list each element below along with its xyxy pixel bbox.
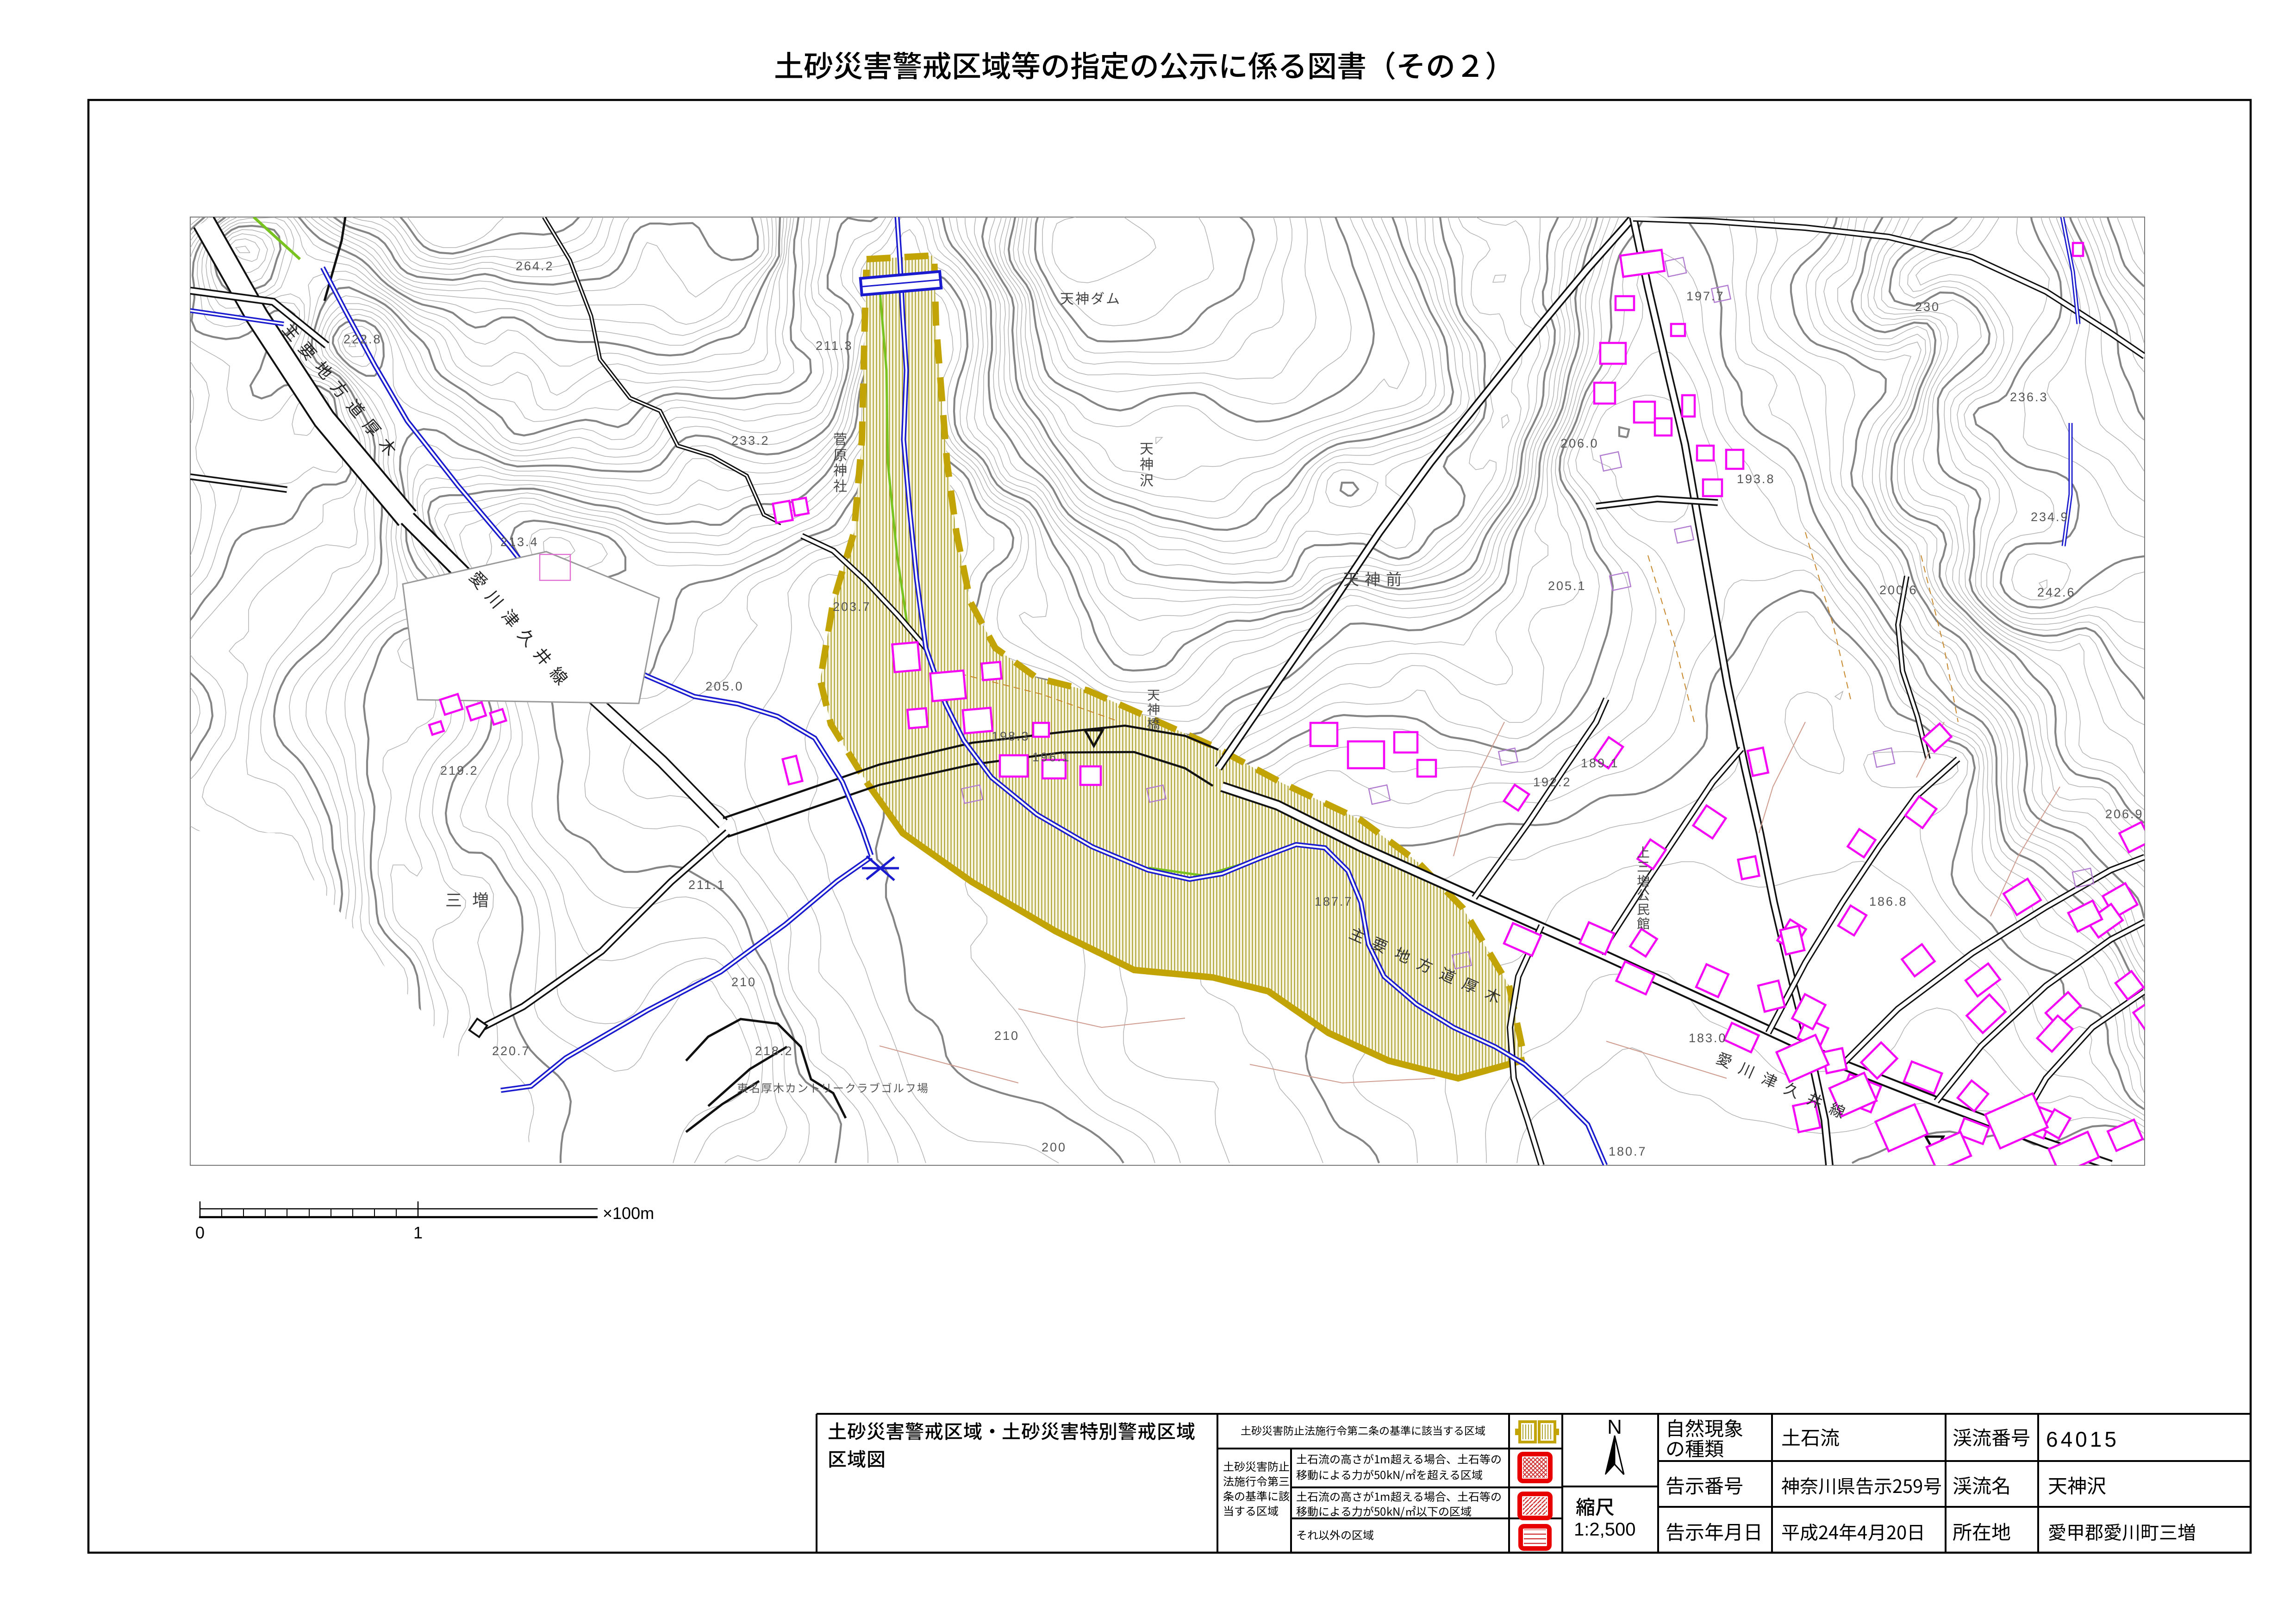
- svg-text:0: 0: [195, 1223, 205, 1242]
- svg-text:200: 200: [1042, 1140, 1067, 1154]
- svg-text:206.0: 206.0: [1560, 436, 1599, 450]
- svg-text:213.4: 213.4: [500, 535, 539, 549]
- svg-text:N: N: [1607, 1416, 1622, 1438]
- svg-text:210: 210: [994, 1029, 1019, 1043]
- svg-text:242.6: 242.6: [2037, 585, 2076, 599]
- svg-text:233.2: 233.2: [731, 434, 770, 448]
- svg-text:189.1: 189.1: [1581, 756, 1619, 770]
- svg-text:197.7: 197.7: [1686, 289, 1725, 303]
- svg-text:218.2: 218.2: [755, 1044, 793, 1058]
- svg-text:206.9: 206.9: [2105, 807, 2144, 821]
- svg-text:180.7: 180.7: [1609, 1144, 1647, 1158]
- svg-text:186.8: 186.8: [1869, 895, 1908, 908]
- svg-text:183.0: 183.0: [1689, 1031, 1727, 1045]
- svg-text:192.2: 192.2: [1533, 775, 1572, 789]
- svg-text:211.1: 211.1: [688, 878, 726, 892]
- svg-text:230: 230: [1915, 300, 1940, 314]
- svg-text:264.2: 264.2: [516, 259, 554, 273]
- svg-text:205.1: 205.1: [1548, 579, 1586, 593]
- svg-text:210: 210: [731, 975, 756, 989]
- svg-text:1:2,500: 1:2,500: [1574, 1519, 1635, 1540]
- svg-text:219.2: 219.2: [440, 764, 479, 777]
- svg-text:193.8: 193.8: [1737, 472, 1775, 486]
- svg-text:234.9: 234.9: [2031, 510, 2069, 524]
- svg-text:205.0: 205.0: [705, 679, 744, 693]
- svg-text:198.3: 198.3: [992, 729, 1030, 743]
- svg-text:211.3: 211.3: [816, 339, 853, 353]
- svg-text:220.7: 220.7: [492, 1044, 530, 1058]
- svg-text:64015: 64015: [2046, 1427, 2119, 1451]
- svg-text:×100m: ×100m: [603, 1204, 654, 1223]
- svg-text:203.7: 203.7: [833, 600, 871, 614]
- svg-text:222.8: 222.8: [343, 332, 382, 346]
- svg-text:200.6: 200.6: [1879, 583, 1918, 597]
- svg-text:1: 1: [413, 1223, 423, 1242]
- svg-text:196.1: 196.1: [1032, 750, 1071, 764]
- svg-text:236.3: 236.3: [2010, 390, 2048, 404]
- svg-text:187.7: 187.7: [1315, 895, 1353, 908]
